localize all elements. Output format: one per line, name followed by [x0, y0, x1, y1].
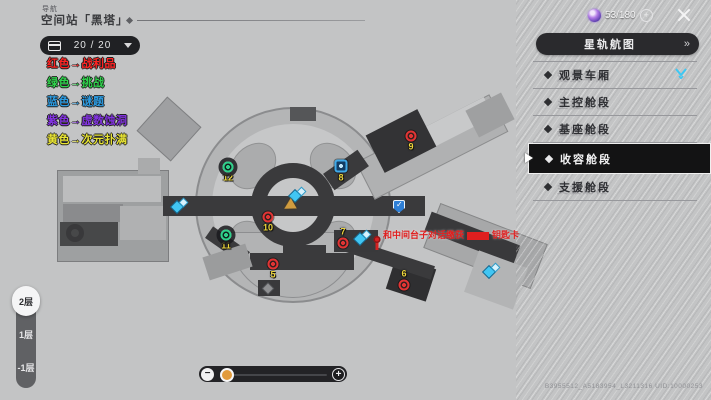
map-shape — [250, 253, 354, 270]
diamond-bullet-icon — [544, 98, 552, 106]
diamond-bullet-icon — [544, 125, 552, 133]
sidebar-item-label: 观景车厢 — [559, 67, 611, 83]
sidebar-title: 星轨航图 — [536, 36, 684, 52]
floor-button[interactable]: 1层 — [12, 319, 40, 349]
map-marker-icon — [263, 212, 274, 223]
map-marker-icon — [263, 283, 274, 294]
map-marker-icon — [338, 238, 349, 249]
sidebar-item[interactable]: 基座舱段 — [533, 116, 697, 143]
map-marker-number: 8 — [338, 174, 343, 183]
legend-line: 蓝色→谜题 — [47, 93, 128, 109]
currency-count: 53/180 — [605, 10, 636, 21]
sidebar-item-label: 基座舱段 — [559, 121, 611, 137]
map-marker-number: 10 — [263, 224, 273, 233]
censored-box — [467, 232, 489, 240]
map-marker[interactable] — [484, 265, 500, 279]
map-marker-number: 7 — [340, 228, 345, 237]
map-marker[interactable]: 10 — [263, 212, 274, 233]
zoom-slider-track[interactable] — [231, 374, 327, 376]
map-marker-icon — [484, 265, 500, 278]
sidebar-item-label: 收容舱段 — [560, 151, 612, 167]
map-marker-icon — [406, 131, 417, 142]
tracking-icon[interactable] — [675, 66, 687, 84]
map-marker[interactable]: 7 — [338, 228, 349, 249]
map-annotation: 和中间台子对话缴获钥匙卡 — [383, 228, 519, 241]
floor-selector: 2层 1层 -1层 — [12, 286, 40, 394]
map-marker[interactable]: 8 — [335, 160, 348, 183]
chest-count: 20 / 20 — [67, 40, 118, 51]
map-shape — [138, 158, 160, 174]
sidebar-list: 观景车厢 主控舱段 基座舱段 — [533, 61, 697, 201]
diamond-bullet-icon — [544, 71, 552, 79]
floor-button[interactable]: 2层 — [12, 286, 40, 316]
map-marker-number: 5 — [270, 271, 275, 280]
map-screen: 12 11 10 5 9 — [0, 0, 711, 400]
map-marker[interactable] — [355, 232, 371, 246]
zoom-slider[interactable]: − + — [199, 366, 347, 382]
map-shape — [63, 204, 123, 222]
map-shape — [300, 245, 326, 255]
double-chevron-icon: » — [684, 38, 689, 50]
map-legend: 红色→战利品 绿色→挑战 蓝色→谜题 紫色→虚数蚀洞 黄色→次元扑满 — [47, 55, 128, 147]
add-currency-button[interactable]: + — [640, 9, 653, 22]
map-marker-icon — [335, 160, 348, 173]
sidebar-header[interactable]: 星轨航图 » — [536, 33, 699, 55]
legend-line: 绿色→挑战 — [47, 74, 128, 90]
map-marker-icon — [355, 232, 371, 245]
sidebar-item[interactable]: 支援舱段 — [533, 174, 697, 201]
legend-line: 红色→战利品 — [47, 55, 128, 71]
map-marker[interactable] — [172, 200, 188, 214]
map-marker[interactable] — [393, 200, 405, 214]
map-marker-number: 12 — [223, 174, 233, 183]
sidebar-item[interactable]: 观景车厢 — [533, 62, 697, 89]
floor-button[interactable]: -1层 — [12, 352, 40, 382]
map-marker[interactable]: 5 — [268, 259, 279, 280]
zoom-out-button[interactable]: − — [201, 368, 214, 381]
map-marker[interactable] — [263, 283, 274, 295]
sidebar-item[interactable]: 收容舱段 — [528, 143, 711, 174]
title-divider — [137, 20, 365, 21]
map-marker[interactable]: 9 — [406, 131, 417, 152]
map-marker-number: 9 — [408, 143, 413, 152]
zoom-knob[interactable] — [220, 368, 234, 382]
map-shape — [290, 107, 316, 121]
map-marker-number: 6 — [401, 270, 406, 279]
map-shape — [63, 176, 161, 202]
sidebar-item-label: 主控舱段 — [559, 94, 611, 110]
map-marker-number: 11 — [221, 242, 231, 251]
map-marker-icon — [221, 230, 232, 241]
map-marker-icon — [172, 200, 188, 213]
sidebar-item-label: 支援舱段 — [559, 179, 611, 195]
close-icon[interactable] — [676, 7, 692, 23]
diamond-bullet-icon — [545, 154, 553, 162]
map-shape — [66, 224, 84, 242]
zoom-in-button[interactable]: + — [332, 368, 345, 381]
map-marker-icon — [399, 280, 410, 291]
map-marker-icon — [393, 200, 405, 213]
map-shape — [120, 206, 166, 240]
map-shape — [137, 97, 202, 162]
map-marker-icon — [223, 162, 234, 173]
chest-icon — [48, 41, 61, 51]
watermark-text: B3955512_A5183954_L3211316 UID:10000253 — [545, 383, 703, 390]
map-marker-icon — [268, 259, 279, 270]
sidebar-item[interactable]: 主控舱段 — [533, 89, 697, 116]
legend-line: 紫色→虚数蚀洞 — [47, 112, 128, 128]
annotation-text-after: 钥匙卡 — [492, 230, 519, 240]
page-title: 空间站「黑塔」 — [41, 12, 129, 28]
map-marker[interactable]: 12 — [223, 162, 234, 183]
cursor-arrow-icon — [525, 153, 533, 163]
annotation-text-before: 和中间台子对话缴获 — [383, 230, 464, 240]
chest-counter-badge[interactable]: 20 / 20 — [40, 36, 140, 55]
map-marker[interactable]: 6 — [399, 270, 410, 291]
currency-display: 53/180 + — [588, 8, 653, 23]
legend-line: 黄色→次元扑满 — [47, 131, 128, 147]
red-pin-icon — [376, 241, 379, 250]
diamond-bullet-icon — [544, 183, 552, 191]
stellar-jade-icon — [588, 9, 601, 22]
chevron-down-icon — [124, 43, 132, 48]
map-marker[interactable]: 11 — [221, 230, 232, 251]
